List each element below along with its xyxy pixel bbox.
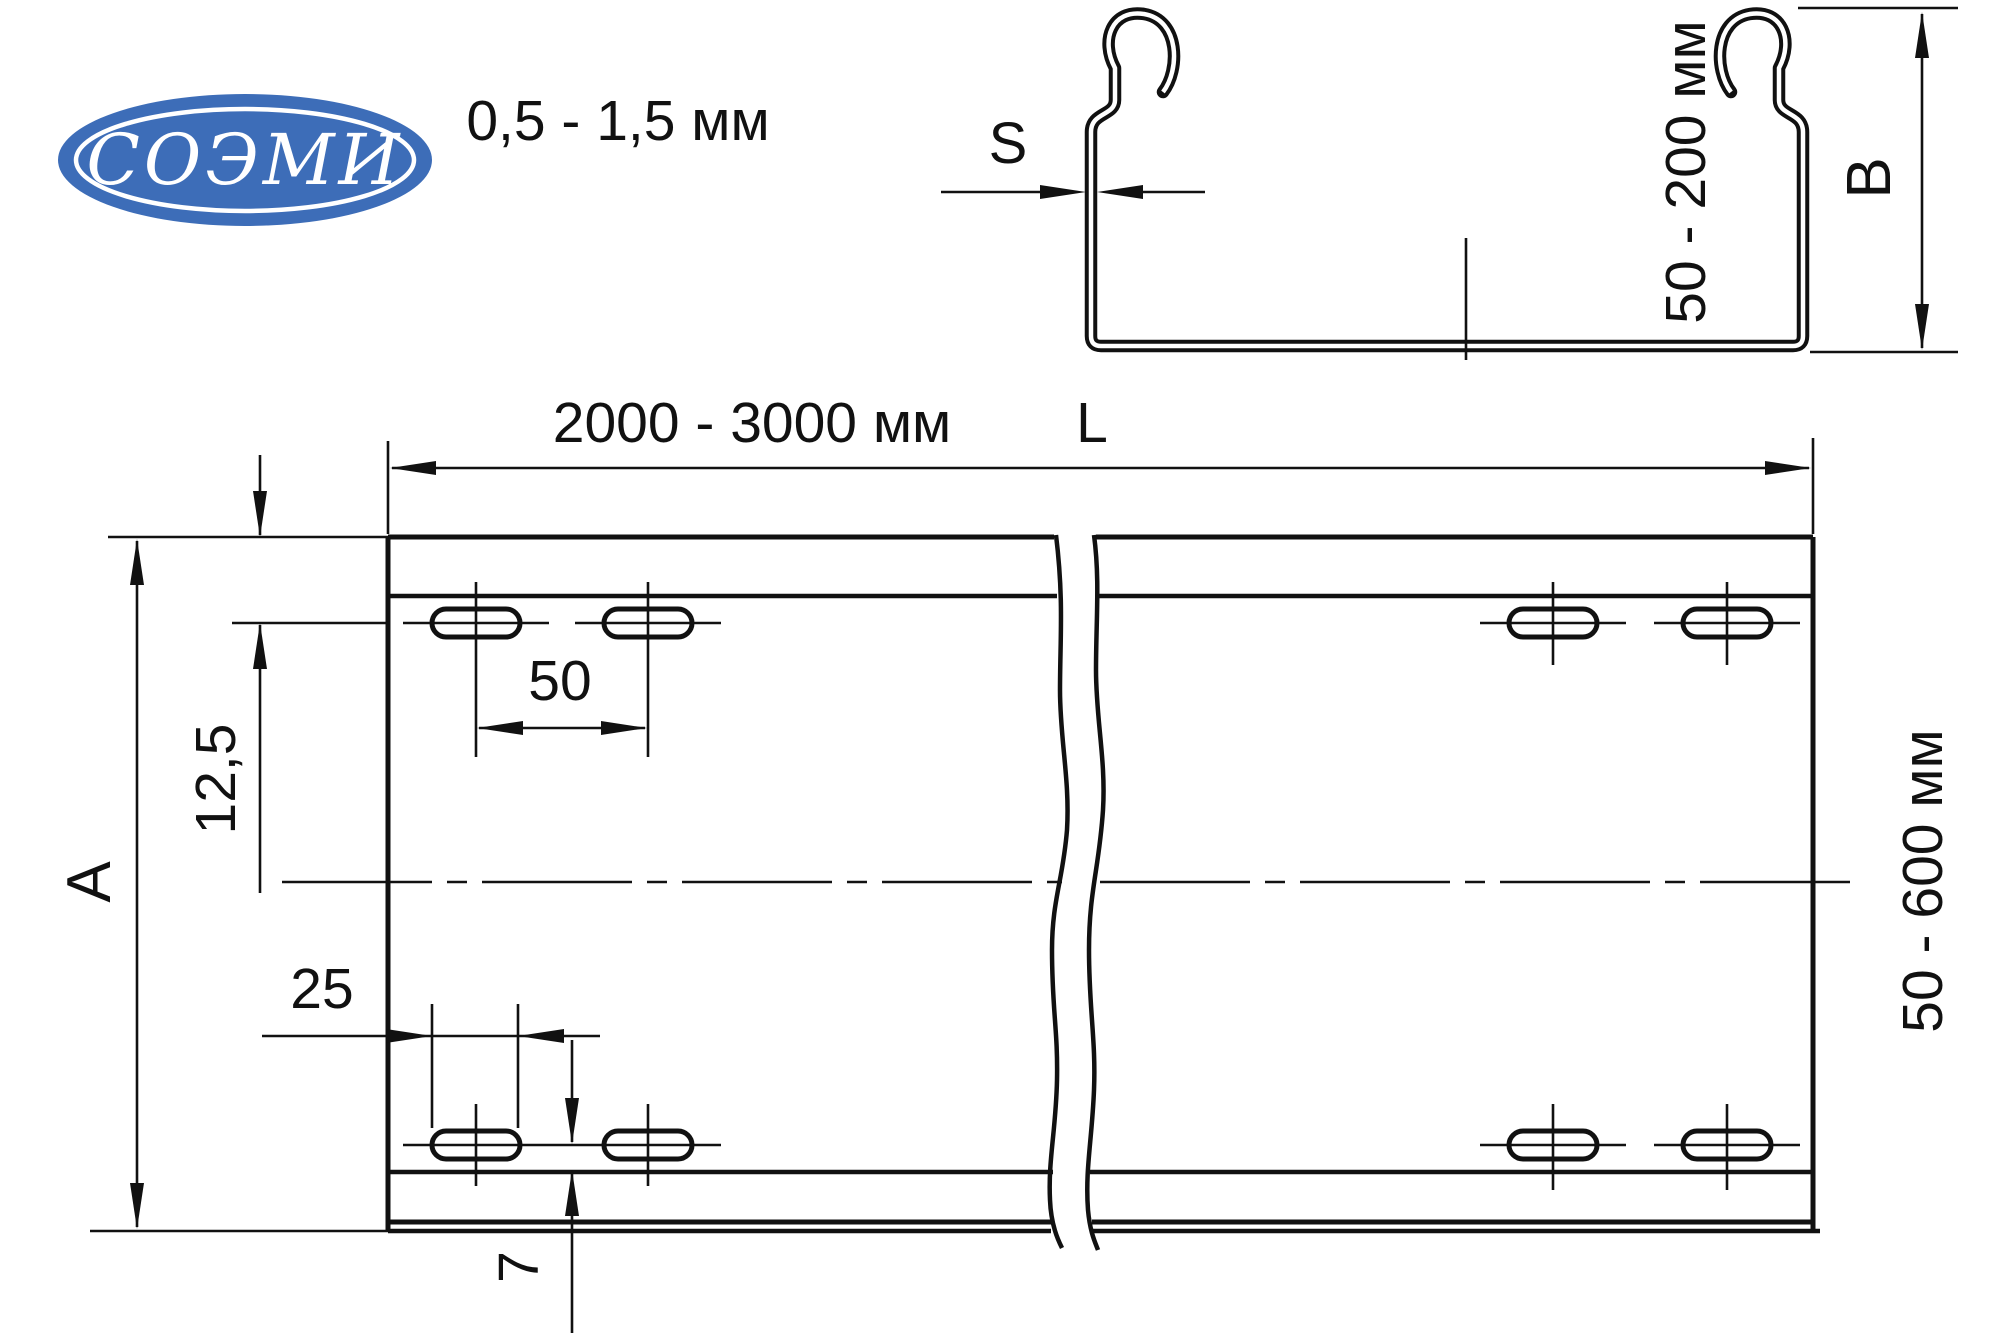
dim-length: 2000 - 3000 мм L xyxy=(388,391,1813,534)
break-lines xyxy=(1050,535,1104,1250)
cable-tray-drawing: СОЭМИ 0,5 - 1,5 мм S 50 - 200 мм B xyxy=(0,0,2000,1333)
arrowhead xyxy=(518,1029,564,1043)
arrowhead xyxy=(601,721,647,735)
tray-outline xyxy=(388,537,1820,1231)
section-height-value: 50 - 200 мм xyxy=(1654,20,1718,323)
slot-spacing-value: 50 xyxy=(528,649,591,713)
section-view: 0,5 - 1,5 мм S 50 - 200 мм B xyxy=(466,8,1958,360)
edge-to-slot-value: 12,5 xyxy=(184,724,248,835)
dim-slot-to-edge: 7 xyxy=(487,1040,579,1333)
arrowhead xyxy=(565,1170,579,1216)
arrowhead xyxy=(1915,12,1929,58)
length-value: 2000 - 3000 мм xyxy=(553,391,951,455)
arrowhead xyxy=(565,1098,579,1144)
slot-centerlines xyxy=(403,582,1800,1190)
arrowhead xyxy=(477,721,523,735)
width-symbol: A xyxy=(55,861,124,903)
arrowhead xyxy=(1765,461,1811,475)
section-height-symbol: B xyxy=(1835,157,1904,198)
arrowhead xyxy=(386,1029,432,1043)
break-line xyxy=(1050,535,1068,1248)
slot-length-value: 25 xyxy=(290,957,353,1021)
slot-to-edge-value: 7 xyxy=(487,1251,551,1283)
arrowhead xyxy=(253,623,267,669)
width-range-label: 50 - 600 мм xyxy=(1891,729,1955,1032)
arrowhead xyxy=(1915,304,1929,350)
dim-slot-spacing: 50 xyxy=(477,649,647,735)
plan-view: 2000 - 3000 мм L A 12,5 50 xyxy=(55,391,1955,1333)
drawing-page: СОЭМИ 0,5 - 1,5 мм S 50 - 200 мм B xyxy=(0,0,2000,1333)
dim-slot-length: 25 xyxy=(262,957,600,1128)
arrowhead xyxy=(1097,185,1143,199)
thickness-value: 0,5 - 1,5 мм xyxy=(466,89,769,153)
logo-text: СОЭМИ xyxy=(86,119,403,201)
length-symbol: L xyxy=(1076,391,1108,455)
slot-holes xyxy=(432,609,1771,1159)
thickness-symbol: S xyxy=(989,111,1028,176)
arrowhead xyxy=(130,1183,144,1229)
arrowhead xyxy=(130,539,144,585)
dim-edge-to-slot-row: 12,5 xyxy=(184,455,390,893)
dim-width-a: A xyxy=(55,537,388,1231)
arrowhead xyxy=(253,491,267,537)
break-line xyxy=(1087,535,1103,1250)
arrowhead xyxy=(390,461,436,475)
arrowhead xyxy=(1040,185,1086,199)
soemi-logo: СОЭМИ xyxy=(58,94,432,226)
